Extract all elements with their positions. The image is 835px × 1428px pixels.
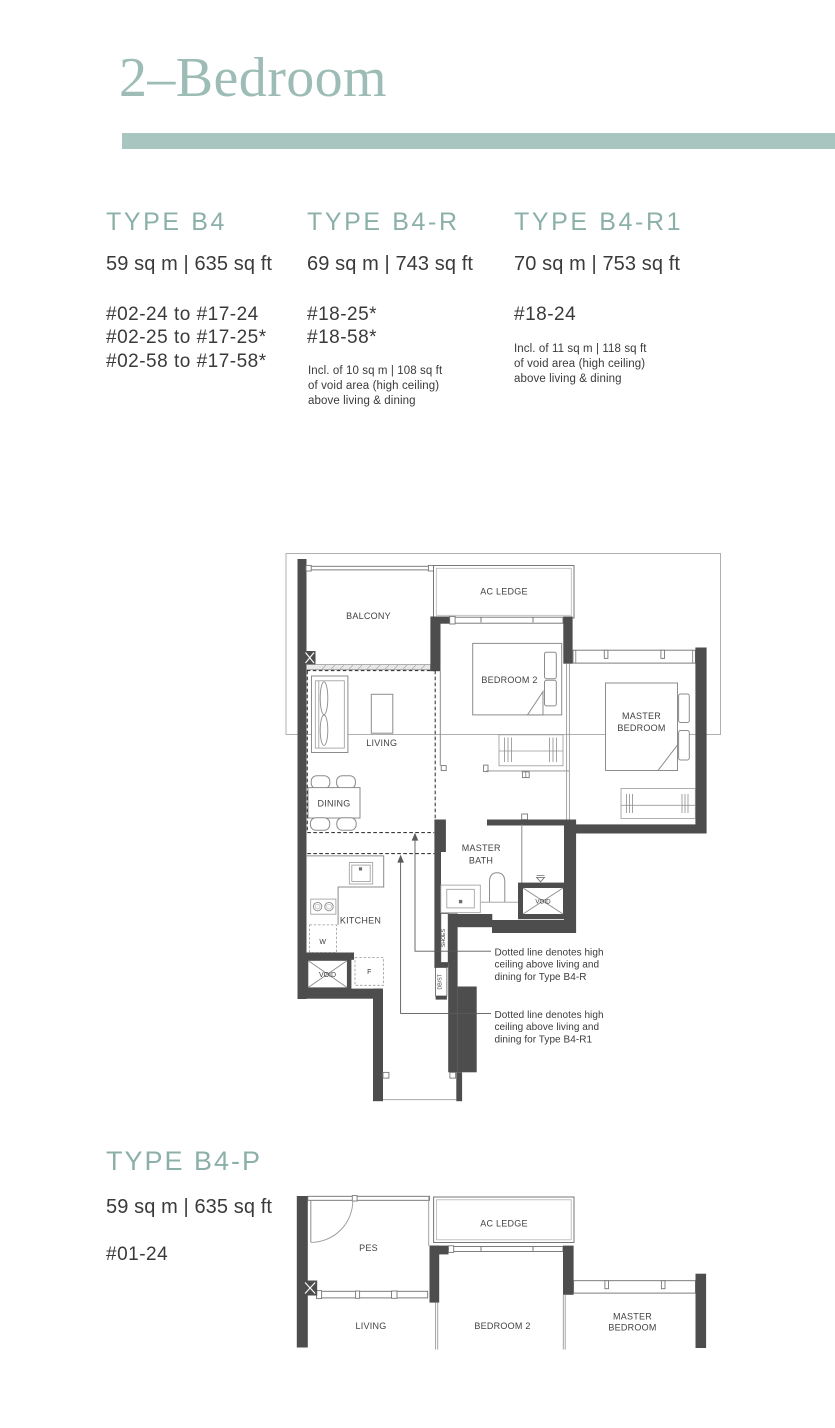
svg-text:SHOES: SHOES [441,928,447,947]
svg-text:MASTER: MASTER [462,843,501,853]
svg-text:AC LEDGE: AC LEDGE [480,586,528,596]
svg-text:MASTER: MASTER [622,711,661,721]
svg-text:VOID: VOID [535,898,551,905]
svg-text:LIVING: LIVING [355,1321,386,1331]
svg-text:BEDROOM 2: BEDROOM 2 [481,675,537,685]
svg-text:BEDROOM: BEDROOM [617,723,665,733]
svg-text:AC LEDGE: AC LEDGE [480,1219,528,1229]
svg-text:BATH: BATH [469,855,493,865]
svg-text:KITCHEN: KITCHEN [340,915,381,925]
svg-text:F: F [367,969,371,976]
svg-text:Dotted line denotes highceilin: Dotted line denotes highceiling above li… [495,1010,604,1046]
svg-text:DINING: DINING [318,799,351,809]
svg-text:BALCONY: BALCONY [346,611,391,621]
svg-text:MASTER: MASTER [613,1312,652,1322]
svg-text:W: W [319,939,326,946]
svg-text:LIVING: LIVING [366,738,397,748]
svg-text:DB/ST: DB/ST [437,973,443,989]
svg-text:Dotted line denotes highceilin: Dotted line denotes highceiling above li… [495,947,604,983]
svg-text:BEDROOM 2: BEDROOM 2 [474,1321,530,1331]
svg-text:VOID: VOID [319,972,336,979]
svg-text:BEDROOM: BEDROOM [608,1322,656,1332]
svg-text:PES: PES [359,1243,378,1253]
